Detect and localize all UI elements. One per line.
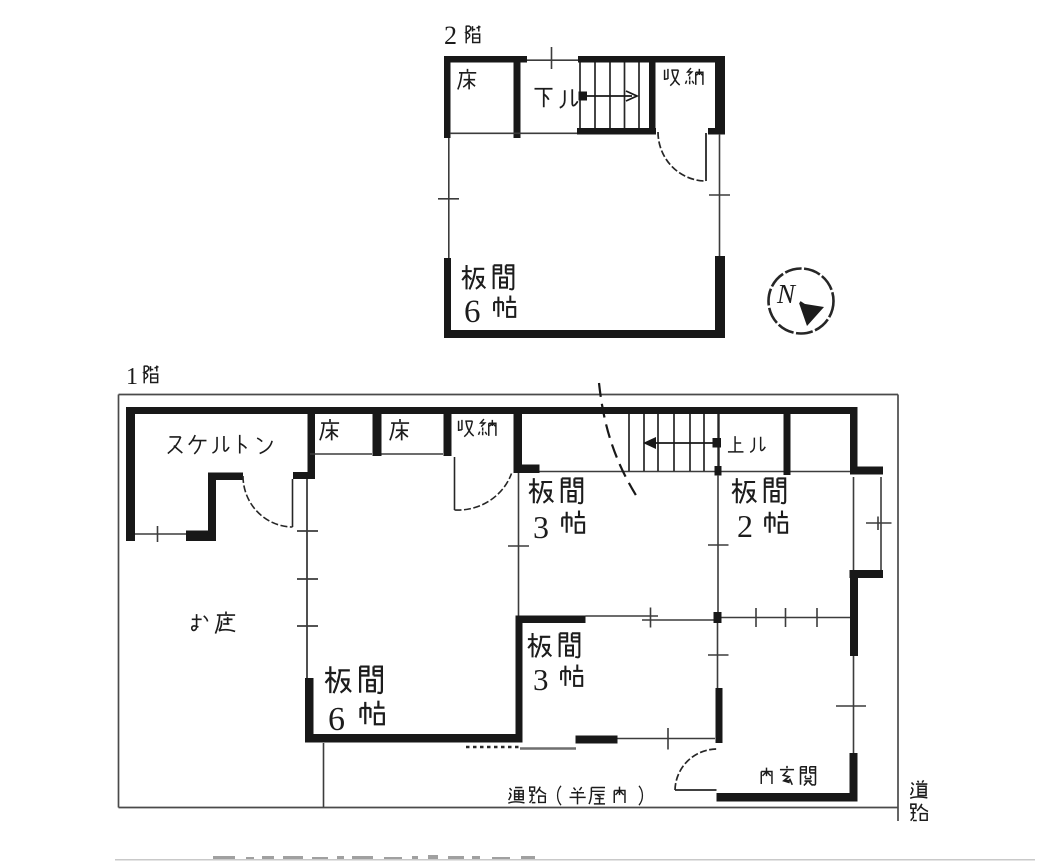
svg-text:N: N [776, 279, 797, 309]
svg-text:1: 1 [126, 364, 138, 390]
svg-text:6: 6 [328, 701, 345, 738]
svg-text:3: 3 [533, 662, 549, 697]
svg-text:3: 3 [533, 509, 549, 545]
svg-text:6: 6 [464, 294, 481, 330]
svg-text:2: 2 [737, 508, 753, 544]
svg-text:2: 2 [444, 21, 457, 50]
